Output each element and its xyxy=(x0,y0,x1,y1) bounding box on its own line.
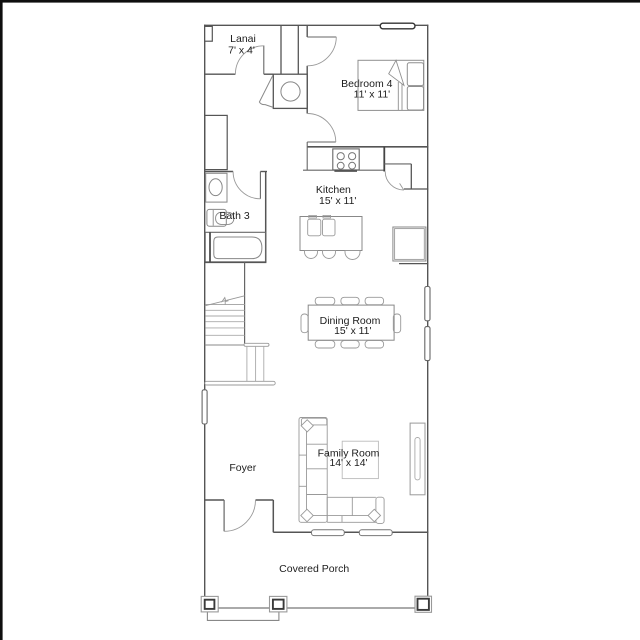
svg-text:Lanai: Lanai xyxy=(230,33,256,45)
svg-text:Foyer: Foyer xyxy=(229,462,256,474)
svg-text:15' x 11': 15' x 11' xyxy=(334,326,371,337)
svg-text:14' x 14': 14' x 14' xyxy=(329,458,367,469)
svg-text:11' x 11': 11' x 11' xyxy=(354,90,391,101)
svg-text:Kitchen: Kitchen xyxy=(316,184,351,196)
svg-text:7' x 4': 7' x 4' xyxy=(228,45,255,57)
svg-text:Bath 3: Bath 3 xyxy=(219,210,250,222)
svg-text:Bedroom 4: Bedroom 4 xyxy=(341,78,393,90)
svg-text:Covered Porch: Covered Porch xyxy=(279,563,349,575)
svg-text:Dining Room: Dining Room xyxy=(320,315,381,327)
svg-text:15' x 11': 15' x 11' xyxy=(319,196,356,207)
